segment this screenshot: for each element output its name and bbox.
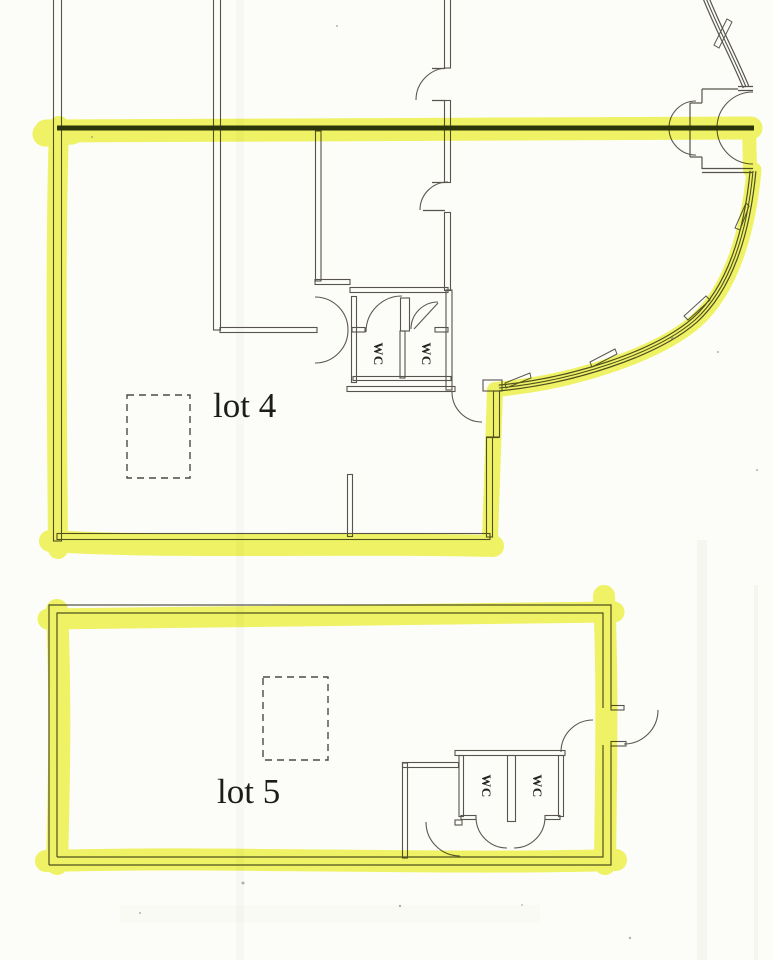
- highlight-lot5-top: [48, 612, 614, 619]
- highlight-lot4-bottom: [50, 541, 493, 546]
- highlight-lot4-left: [57, 126, 59, 549]
- floor-plan-drawing: WC WC lot 4: [0, 0, 773, 960]
- lot4-label: lot 4: [213, 386, 276, 425]
- highlight-lot5-bottom: [46, 859, 616, 861]
- highlight-vestibule-stub: [749, 126, 750, 170]
- highlight-lot5-right: [604, 596, 606, 864]
- highlight-top-band: [46, 128, 751, 131]
- wc-label: WC: [479, 774, 494, 797]
- wc-label: WC: [419, 342, 434, 365]
- highlight-lot4-right: [490, 390, 495, 539]
- wc-label: WC: [371, 342, 386, 365]
- lot5-label: lot 5: [217, 772, 280, 811]
- wc-label: WC: [530, 774, 545, 797]
- highlight-lot5-left: [57, 610, 59, 864]
- scanned-floor-plan: WC WC lot 4: [0, 0, 773, 960]
- scan-artifacts: [0, 0, 773, 960]
